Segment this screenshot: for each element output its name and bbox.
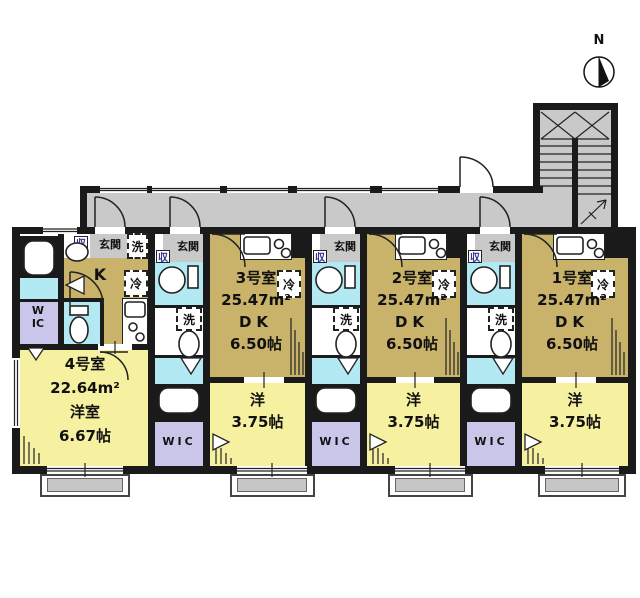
unit2-area: 25.47m²: [367, 292, 457, 309]
unit2-wet-div2: [312, 355, 360, 358]
unit1-bedroom-size: 3.75帖: [522, 414, 628, 431]
unit2-counter-wall: [447, 234, 460, 258]
unit1-laundry-box: 洗: [488, 307, 514, 331]
fridge-label: 冷: [130, 275, 142, 292]
unit3-wic-label: WIC: [155, 436, 203, 448]
unit3-entrance-label: 玄関: [163, 241, 213, 253]
unit1-bath-floor: [467, 358, 515, 384]
unit4-bedroom-size: 6.67帖: [30, 428, 140, 445]
stairs-divider-wall: [572, 138, 578, 227]
unit4-wic-top: [20, 299, 58, 302]
unit4-toilet-top: [64, 298, 104, 302]
unit2-dk-size: 6.50帖: [367, 336, 457, 353]
unit2-balcony-window: [395, 466, 465, 474]
corridor-left-wall: [80, 186, 87, 234]
wall-u3-u2: [305, 234, 312, 466]
unit1-wic-top: [467, 416, 515, 422]
unit3-dk-size: 6.50帖: [210, 336, 302, 353]
unit2-dk-bed-window: [396, 377, 434, 383]
unit4-balcony-window: [47, 466, 123, 474]
laundry-label: 洗: [340, 311, 352, 328]
unit3-bath-floor: [155, 358, 203, 384]
unit4-left-window: [12, 358, 20, 428]
unit1-kitchen-counter: [553, 232, 605, 260]
unit2-kitchen-counter: [395, 232, 447, 260]
unit2-bedroom-size: 3.75帖: [367, 414, 460, 431]
stairs-right-wall: [611, 103, 618, 234]
unit2-bath-floor: [312, 358, 360, 384]
corridor-window-5: [382, 186, 438, 193]
unit3-toilet-room: [155, 262, 203, 306]
unit3-name: 3号室: [210, 270, 302, 287]
unit4-kitchen-counter: [122, 298, 148, 350]
outer-wall-right: [628, 227, 636, 474]
unit3-col-wall: [203, 234, 210, 466]
unit4-entrance-label: 玄関: [90, 239, 130, 251]
corridor-window-2: [152, 186, 220, 193]
unit4-balcony-floor: [47, 478, 123, 492]
unit1-wic-label: WIC: [467, 436, 515, 448]
unit4-laundry-box: 洗: [127, 233, 148, 259]
unit4-bedroom-label: 洋室: [30, 404, 140, 421]
unit4-fridge-box: 冷: [124, 270, 148, 297]
unit1-balcony-floor: [545, 478, 619, 492]
unit3-door-gap: [170, 227, 200, 234]
unit1-tub-block: [467, 384, 515, 416]
unit2-wic-label: WIC: [312, 436, 360, 448]
corridor-window-1: [100, 186, 147, 193]
unit1-dk-label: DK: [522, 314, 622, 331]
unit4-storage-box: 収: [74, 236, 88, 249]
unit2-dk-label: DK: [367, 314, 457, 331]
unit4-bath-floor: [20, 278, 58, 300]
unit3-tub-block: [155, 384, 203, 416]
unit3-laundry-box: 洗: [176, 307, 202, 331]
unit4-wic-label: WIC: [31, 304, 45, 330]
unit2-name: 2号室: [367, 270, 457, 287]
compass-icon: [584, 57, 614, 87]
unit3-counter-wall: [292, 234, 305, 258]
outer-wall-left: [12, 227, 20, 474]
wall-u2-u1: [460, 234, 467, 466]
unit3-bedroom-label: 洋: [210, 392, 305, 409]
unit1-bedroom-label: 洋: [522, 392, 628, 409]
unit2-bedroom-label: 洋: [367, 392, 460, 409]
floor-plan: 洗 洗 洗 洗 冷 冷 冷 冷 収 収 収 収: [0, 0, 640, 598]
unit4-top-window: [43, 227, 77, 234]
unit3-area: 25.47m²: [210, 292, 302, 309]
unit3-dk-label: DK: [210, 314, 302, 331]
unit2-col-wall: [360, 234, 367, 466]
corridor-door-gap: [460, 186, 493, 193]
unit4-toilet-right: [100, 302, 104, 346]
unit2-laundry-box: 洗: [333, 307, 359, 331]
unit1-dk-size: 6.50帖: [522, 336, 622, 353]
unit1-wet-div2: [467, 355, 515, 358]
laundry-label: 洗: [131, 238, 143, 255]
unit4-name: 4号室: [30, 356, 140, 373]
storage-label: 収: [76, 235, 86, 250]
unit4-toilet-room: [64, 302, 100, 350]
stairs-top-wall: [533, 103, 618, 110]
unit4-area: 22.64m²: [30, 380, 140, 397]
unit2-entrance-label: 玄関: [320, 241, 370, 253]
wall-u4-u3: [148, 234, 155, 466]
unit2-door-gap: [325, 227, 355, 234]
corridor-window-4: [297, 186, 370, 193]
unit3-balcony-floor: [237, 478, 307, 492]
unit1-dk-bed-window: [556, 377, 596, 383]
unit3-wic-top: [155, 416, 203, 422]
unit3-dk-bed-window: [244, 377, 284, 383]
unit3-balcony-window: [237, 466, 307, 474]
stairs-left-wall: [533, 103, 540, 193]
unit3-bedroom-size: 3.75帖: [210, 414, 305, 431]
unit2-balcony-floor: [395, 478, 465, 492]
unit2-toilet-room: [312, 262, 360, 306]
unit2-tub-block: [312, 384, 360, 416]
laundry-label: 洗: [183, 311, 195, 328]
unit1-door-gap: [480, 227, 510, 234]
compass-north-label: N: [589, 34, 609, 48]
corridor: [87, 193, 611, 227]
unit1-toilet-room: [467, 262, 515, 306]
laundry-label: 洗: [495, 311, 507, 328]
unit1-area: 25.47m²: [522, 292, 622, 309]
unit3-kitchen-counter: [240, 232, 292, 260]
unit4-col-wall: [58, 234, 64, 350]
unit2-wic-top: [312, 416, 360, 422]
unit1-entrance-label: 玄関: [475, 241, 525, 253]
unit3-wet-div2: [155, 355, 203, 358]
unit1-counter-wall: [605, 234, 628, 258]
unit1-col-wall: [515, 234, 522, 466]
unit4-bath-block: [20, 236, 58, 280]
unit1-name: 1号室: [522, 270, 622, 287]
unit4-kitchen-label: K: [88, 266, 112, 284]
unit1-balcony-window: [545, 466, 619, 474]
corridor-window-3: [227, 186, 288, 193]
unit4-door-gap: [95, 227, 125, 234]
